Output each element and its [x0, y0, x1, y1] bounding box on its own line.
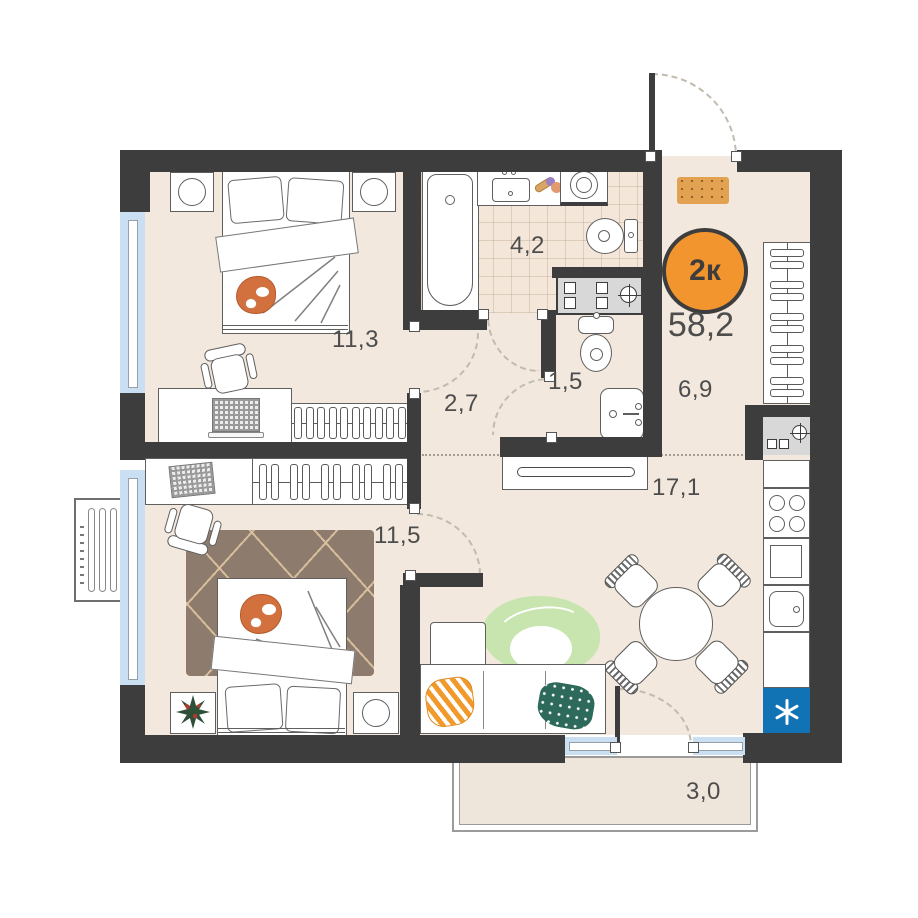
- utility-niche: [763, 417, 810, 455]
- kitchen-sink: [763, 585, 810, 632]
- door-swing-arc-entrance: [652, 73, 737, 157]
- burner-icon: [769, 495, 785, 511]
- burner-icon: [769, 516, 785, 532]
- entrance-recess-floor: [650, 156, 739, 176]
- gas-valve-icon: [620, 286, 637, 303]
- room-label-bedroom-bottom: 11,5: [374, 522, 421, 550]
- toilet: [584, 215, 640, 257]
- table-lamp-icon: [178, 178, 206, 206]
- wall-segment: [743, 733, 842, 763]
- door-jamb: [688, 742, 699, 753]
- laptop-icon: [168, 462, 215, 498]
- badge-rooms-label: 2к: [689, 254, 721, 288]
- pillow: [227, 176, 285, 225]
- door-jamb: [731, 151, 742, 162]
- door-jamb: [405, 570, 416, 581]
- dining-table: [639, 587, 713, 661]
- window-frame: [128, 220, 138, 388]
- bathtub-basin: [427, 174, 473, 306]
- room-label-hallway: 6,9: [678, 376, 713, 404]
- wall-segment: [403, 165, 421, 315]
- door-jamb: [409, 321, 420, 332]
- floorplan: 3,0: [0, 0, 918, 918]
- door-jamb: [537, 309, 548, 320]
- bathtub: [422, 168, 479, 313]
- door-jamb: [409, 388, 420, 399]
- snowflake-icon: [763, 688, 810, 735]
- nightstand: [353, 692, 399, 734]
- washing-machine: [560, 166, 608, 206]
- wall-segment: [407, 393, 421, 509]
- wall-segment: [500, 437, 643, 457]
- fridge: [763, 688, 810, 735]
- bed-footer-line: [218, 728, 345, 733]
- laptop-icon: [212, 398, 260, 432]
- bathroom-sink-counter: [477, 168, 561, 206]
- tv-icon: [517, 467, 635, 477]
- faucet-icon: [623, 413, 639, 415]
- stove-hob: [763, 488, 810, 538]
- area-badge: 2к: [662, 228, 748, 314]
- doormat: [677, 177, 729, 204]
- wall-segment: [552, 267, 643, 278]
- door-jamb: [546, 432, 557, 443]
- table-lamp-icon: [360, 178, 388, 206]
- toilet-button: [628, 232, 634, 238]
- sink-drain: [609, 410, 617, 418]
- window-frame: [128, 478, 138, 680]
- bed-footer-line: [223, 325, 348, 330]
- ac-unit: [74, 498, 122, 602]
- wc-sink: [600, 388, 644, 440]
- room-label-corridor: 2,7: [444, 390, 479, 418]
- kitchen-counter: [763, 460, 810, 488]
- wall-segment: [810, 150, 842, 763]
- laptop-base: [208, 432, 264, 438]
- burner-icon: [789, 516, 805, 532]
- wall-segment: [120, 735, 565, 763]
- kitchen-module: [763, 538, 810, 585]
- door-jamb: [610, 742, 621, 753]
- wall-segment: [400, 585, 420, 736]
- total-area-label: 58,2: [653, 306, 749, 345]
- room-label-bedroom-top: 11,3: [332, 326, 379, 354]
- bathtub-drain: [445, 195, 455, 205]
- door-jamb: [409, 503, 420, 514]
- pillow: [286, 177, 345, 225]
- nightstand: [170, 172, 214, 212]
- wall-segment: [120, 442, 420, 458]
- tv-stand: [502, 456, 648, 490]
- window-frame: [569, 742, 615, 751]
- room-label-balcony: 3,0: [686, 778, 721, 806]
- bed: [217, 578, 347, 736]
- nightstand: [352, 172, 396, 212]
- door-jamb: [645, 151, 656, 162]
- cat-icon: [240, 594, 282, 634]
- kitchen-counter: [763, 632, 810, 688]
- faucet-handle: [635, 419, 642, 426]
- toilet-button: [593, 312, 600, 319]
- wall-segment: [120, 685, 145, 763]
- wall-segment: [643, 150, 662, 457]
- sink-drain: [793, 606, 800, 613]
- room-label-bathroom: 4,2: [510, 232, 545, 260]
- sink-drain: [508, 191, 513, 196]
- wall-segment: [120, 150, 652, 172]
- table-lamp-icon: [362, 699, 390, 727]
- room-label-living-kitchen: 17,1: [652, 474, 701, 502]
- window-frame: [697, 742, 743, 751]
- coat-rack-hangers: [763, 242, 811, 404]
- wall-segment: [745, 405, 763, 460]
- cat-icon: [236, 276, 276, 314]
- faucet-handle: [635, 403, 642, 410]
- sink-basin: [492, 178, 530, 202]
- toilet-drain: [598, 230, 610, 242]
- pillow: [224, 683, 283, 733]
- wardrobe-hangers: [252, 458, 410, 505]
- room-label-wc: 1,5: [548, 368, 583, 396]
- door-jamb: [478, 309, 489, 320]
- entrance-door-leaf: [649, 73, 655, 157]
- meter-icon: [792, 425, 807, 440]
- toilet: [572, 312, 622, 376]
- burner-icon: [789, 495, 805, 511]
- washer-drum-inner: [576, 177, 592, 193]
- wardrobe-hangers: [291, 403, 409, 443]
- ventilation-shaft: [556, 276, 643, 315]
- toilet-drain: [590, 348, 603, 361]
